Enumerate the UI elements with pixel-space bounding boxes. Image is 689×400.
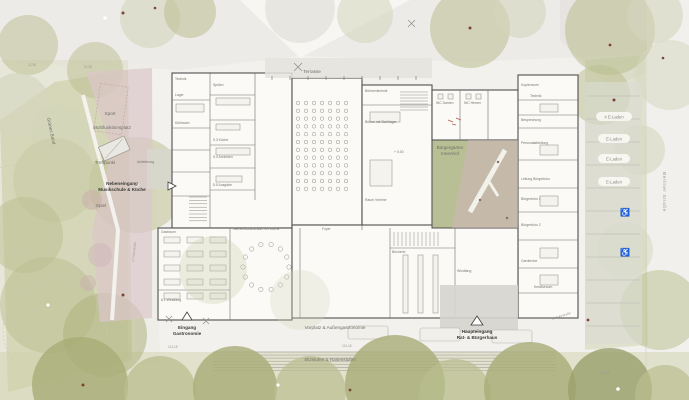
site-plan: 4 E-Laden E-Laden E-Laden E-Laden ♿ ♿ [0,0,689,400]
wheelchair-icon: ♿ [620,247,630,257]
side-entrance-label-2: Musikschule & Küche [98,187,146,192]
label-treffpunkt: Treffpunkt [95,160,116,165]
hall [292,78,362,225]
label-sitzstufen: Sitzstufen & Rasenstufen [304,357,356,362]
site-plan-drawing: 4 E-Laden E-Laden E-Laden E-Laden ♿ ♿ [0,0,689,400]
room-wc-damen: WC Damen [436,101,454,105]
room-leitung: Leitung Bürgerbüro [521,177,550,181]
room-windfang2: Windfang [457,269,471,273]
label-buergergarten-2: Innenhof [441,151,460,156]
room-gastraum: Gastraum [161,230,176,234]
room-kopierraum: Kopierraum [521,83,539,87]
label-berliner-strasse: Berliner Straße [661,172,667,212]
wheelchair-icon: ♿ [620,207,630,217]
room-raum-vereine: Raum Vereine [365,198,387,202]
room-kreativraum: Kreativraum [534,285,552,289]
parking-strip: 4 E-Laden E-Laden E-Laden E-Laden ♿ ♿ [585,82,642,344]
room-windfang1: 6.1 Windfang [161,298,181,302]
room-gemeinschaftsraum: Gemeinschaftsraum mit Küche [233,227,279,231]
dimension: 11,38 [84,65,92,69]
room-garderobe: Garderobe [521,259,537,263]
main-entrance-label-1: Haupteingang [462,329,493,334]
main-entrance-label-2: Rat- & Bürgerhaus [457,335,498,340]
gastro-entrance-label-1: Eingang [178,325,196,330]
label-buergergarten: Bürgergarten [437,145,464,150]
room-foyer: Foyer [322,227,332,231]
room-technik: Technik [175,77,187,81]
parking-stall-label: 4 E-Laden [604,115,624,120]
room-buehne: Bühne mit Stuhllager [365,120,397,124]
room-spuelen: Spülen [213,83,224,87]
dimension: 113,18 [168,345,178,349]
label-sport: Sport [105,111,117,116]
side-entrance-label-1: Nebeneingang [106,181,138,186]
dimension: 113,18 [600,371,610,375]
parking-stall-label: E-Laden [606,180,623,185]
room-kuehlraum: Kühlraum [175,121,190,125]
label-multifunktionsplatz: Multifunktionsplatz [93,125,131,130]
level-mark: + 0,00 [394,150,404,154]
dimension: 11,38 [28,63,36,67]
label-vorplatz: Vorplatz & Außengastronomie [305,325,366,330]
room-technik2: Technik [530,94,542,98]
room-besprechung: Besprechung [521,118,541,122]
room-buehnentechnik: Bühnentechnik [365,89,388,93]
label-anlieferung: Anlieferung [137,160,154,164]
room-wc-herren: WC Herren [464,101,481,105]
dimension: 113,18 [342,344,352,348]
room-personalabteilung: Personalabteilung [521,141,548,145]
room-kueche: 5.3 Küche [213,138,228,142]
label-spiel: Spiel [96,203,106,208]
parking-stall-label: E-Laden [606,157,623,162]
room-buergerbuero1: Bürgerbüro 1 [521,197,541,201]
label-terrasse: Terrasse [303,69,321,74]
room-buecherei: Bücherei [392,250,406,254]
terrace [265,58,432,80]
gastro-entrance-label-2: Gastronomie [173,331,202,336]
room-lager: Lager [175,93,185,97]
room-anrichten: 5.4 Anrichten [213,155,233,159]
parking-stall-label: E-Laden [606,137,623,142]
room-ausgabe: 5.5 Ausgabe [213,183,232,187]
room-buergerbuero2: Bürgerbüro 2 [521,223,541,227]
